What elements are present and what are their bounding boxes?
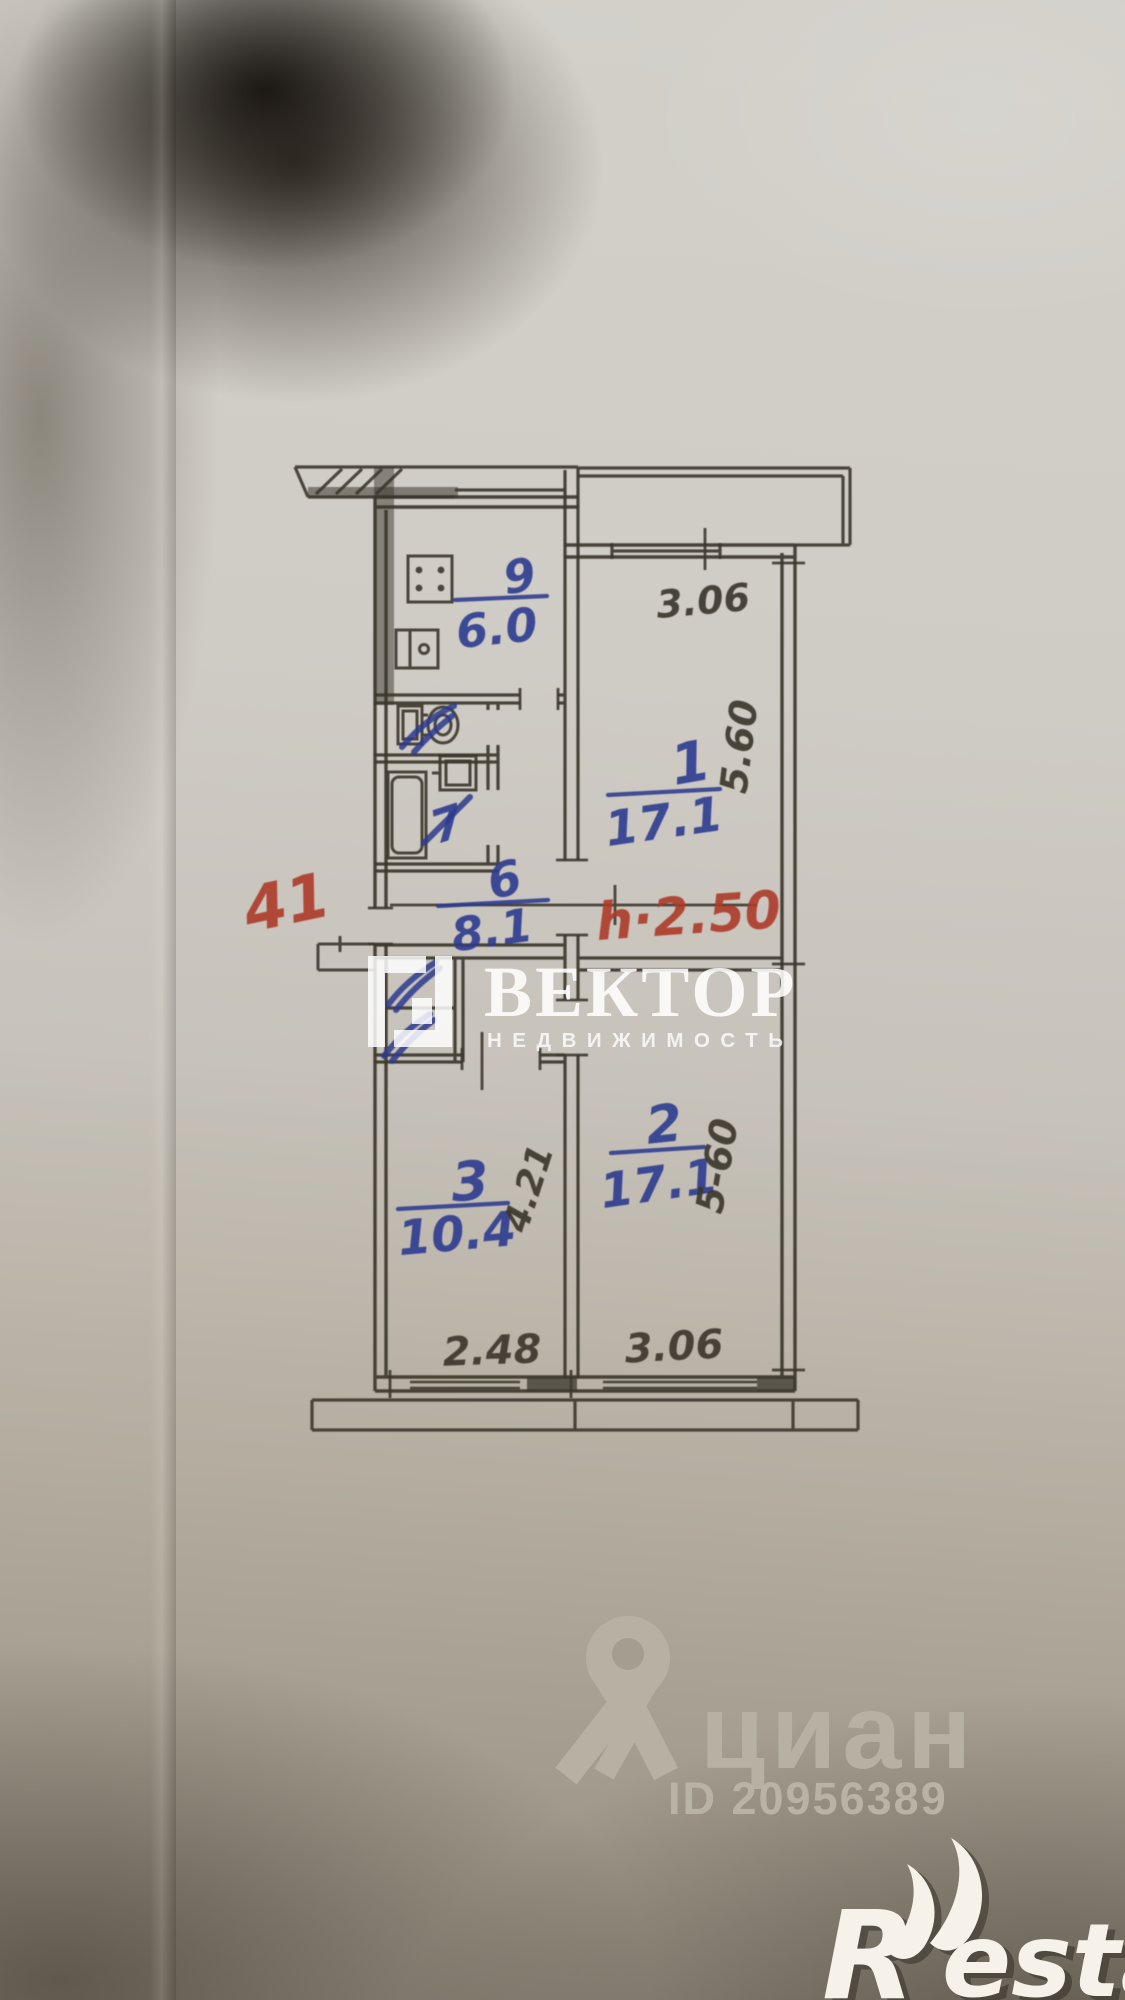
restate-watermark: R estate R estate xyxy=(822,1838,1125,2000)
vektor-watermark: ВЕКТОР НЕДВИЖИМОСТЬ xyxy=(368,952,797,1052)
vektor-logo-icon xyxy=(368,956,452,1047)
watermarks-layer: ВЕКТОР НЕДВИЖИМОСТЬ циан ID 20956389 R e… xyxy=(0,0,1125,2000)
vektor-subtitle: НЕДВИЖИМОСТЬ xyxy=(487,1029,793,1052)
restate-name: estate xyxy=(942,1902,1125,2000)
cian-id: ID 20956389 xyxy=(668,1773,948,1824)
cian-pin-icon xyxy=(566,1616,670,1776)
cian-watermark: циан ID 20956389 xyxy=(566,1616,977,1824)
vektor-title: ВЕКТОР xyxy=(484,952,797,1032)
paper-photo: 9 6.0 1 17.1 6 8.1 7 2 17.1 3 10.4 3.06 … xyxy=(0,0,1125,2000)
